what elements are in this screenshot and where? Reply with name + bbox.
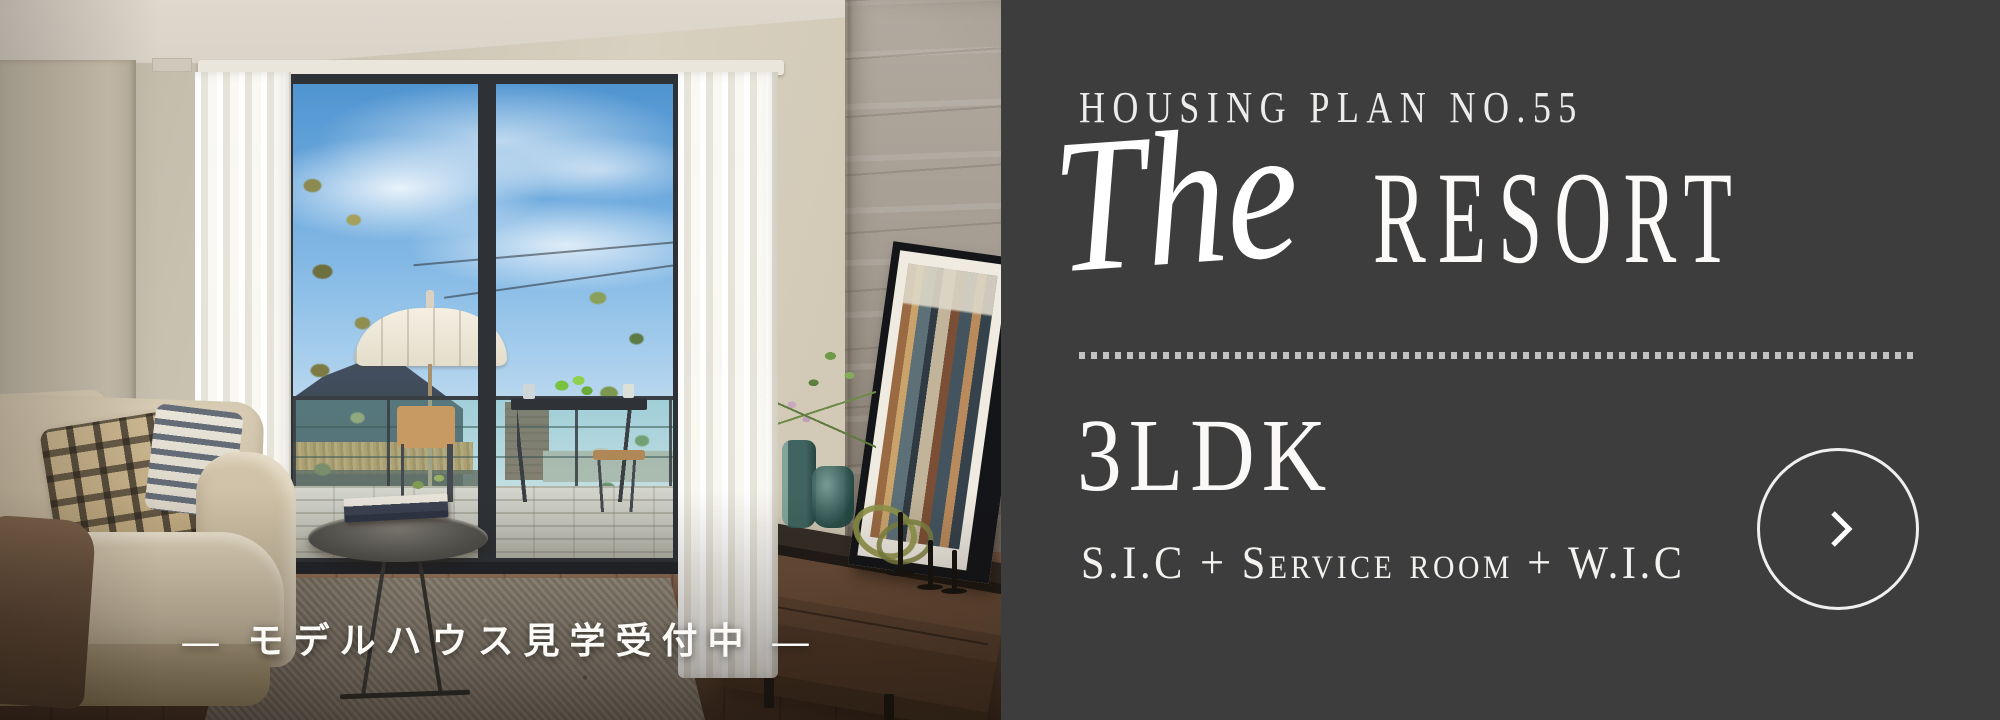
window-sill xyxy=(283,562,683,574)
outdoor-stool xyxy=(593,450,645,460)
next-button[interactable] xyxy=(1757,448,1919,610)
layout-detail: S.I.C + Service room + W.I.C xyxy=(1081,538,1686,590)
chevron-right-icon xyxy=(1822,507,1854,551)
candlestick xyxy=(898,512,903,574)
sideboard-leg xyxy=(884,694,894,720)
potted-plant xyxy=(545,372,601,406)
dashed-divider xyxy=(1079,352,1913,359)
candlestick-base xyxy=(941,588,967,594)
ceiling-vent xyxy=(152,58,192,72)
window-glass xyxy=(293,84,673,558)
window-mullion xyxy=(478,84,496,558)
glass-vase-tall xyxy=(782,440,816,528)
window xyxy=(283,74,683,568)
table-greenery xyxy=(400,468,460,502)
outdoor-chair xyxy=(397,406,455,448)
coffee-table-top xyxy=(308,514,488,562)
candlestick-base xyxy=(886,570,914,576)
layout-type: 3LDK xyxy=(1077,404,1333,508)
candlestick xyxy=(928,540,933,588)
cup xyxy=(623,384,634,398)
glass-vase-round xyxy=(812,466,854,528)
cup xyxy=(523,384,535,399)
title-main-resort: RESORT xyxy=(1373,152,1744,284)
parasol-finial xyxy=(426,290,434,310)
outdoor-stool-legs xyxy=(597,460,641,512)
candlestick-base xyxy=(917,584,943,590)
photo-caption: — モデルハウス見学受付中 — xyxy=(0,612,1001,664)
title-script-the: The xyxy=(1047,95,1305,304)
sheer-curtain-right xyxy=(678,72,778,678)
candlestick xyxy=(952,550,957,592)
info-panel: HOUSING PLAN NO.55 The RESORT 3LDK S.I.C… xyxy=(1001,0,2000,720)
housing-plan-banner[interactable]: — モデルハウス見学受付中 — HOUSING PLAN NO.55 The R… xyxy=(0,0,2000,720)
interior-photo: — モデルハウス見学受付中 — xyxy=(0,0,1001,720)
